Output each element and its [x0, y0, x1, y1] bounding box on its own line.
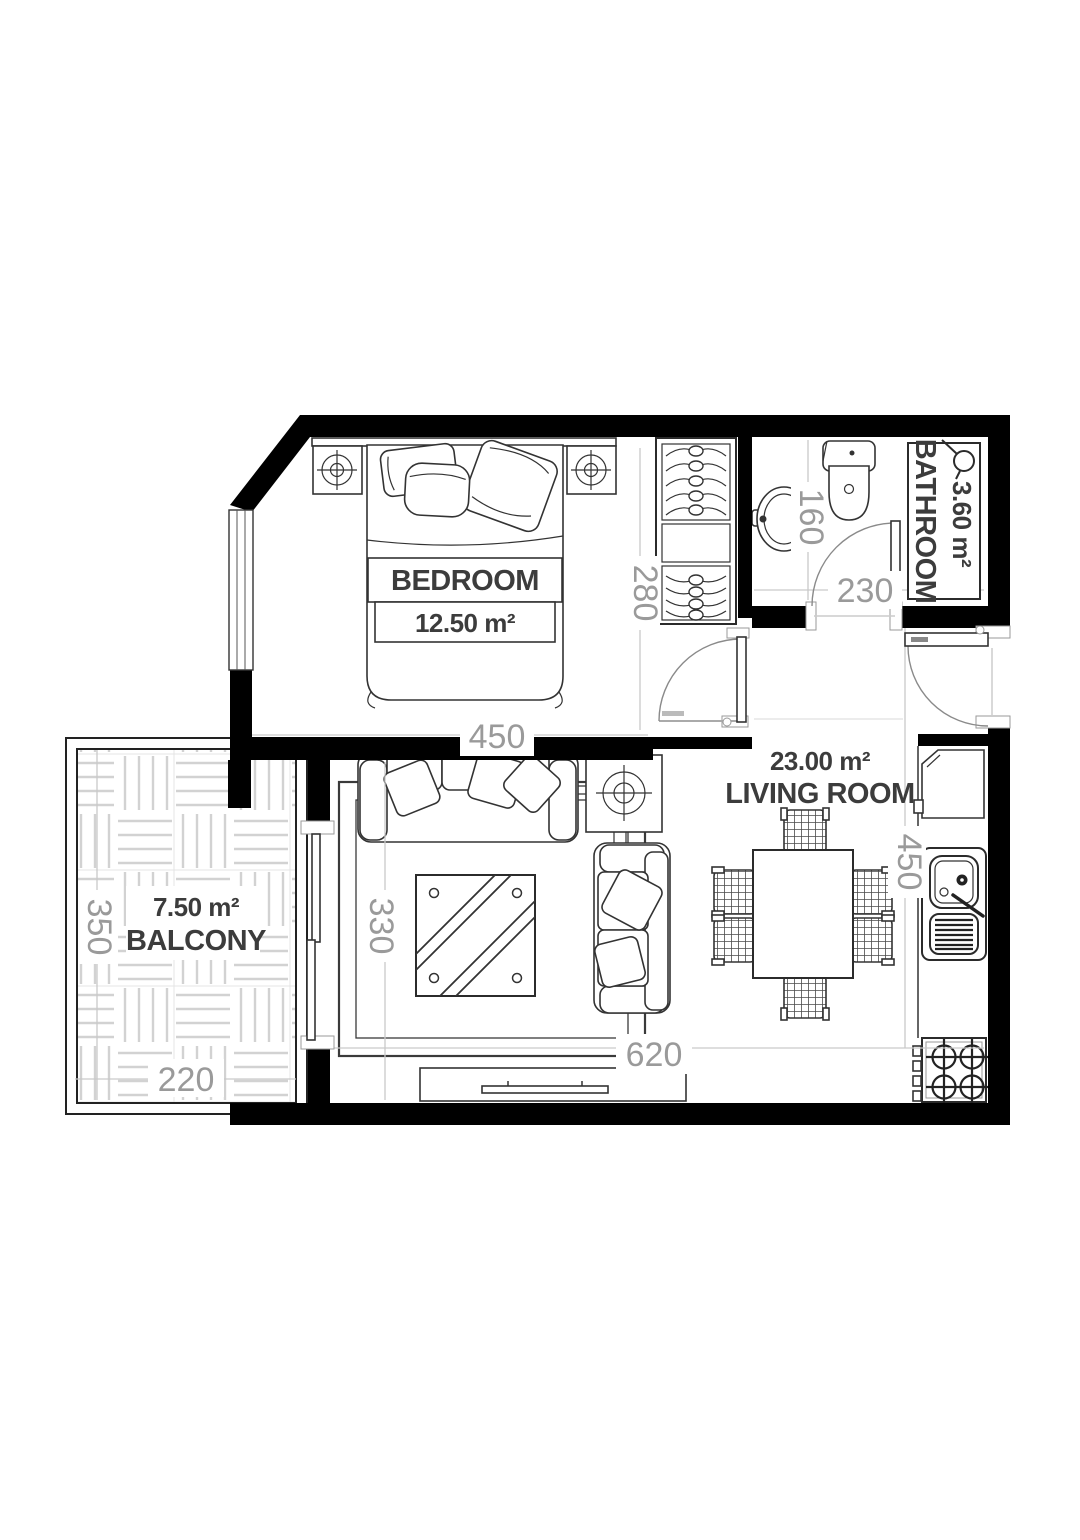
dining-set [712, 808, 894, 1020]
sofa [358, 750, 578, 842]
floor-plan-drawing: BEDROOM 12.50 m² [0, 0, 1080, 1540]
wall-bedroom-bottom [230, 737, 653, 760]
room-bedroom: BEDROOM 12.50 m² [312, 438, 736, 708]
pillow [404, 462, 471, 517]
dim-bathroom-width: 230 [837, 572, 894, 610]
wall-bathroom-bottom-left [752, 606, 812, 628]
nightstand-right [567, 446, 616, 494]
entrance-door [905, 626, 1010, 728]
dim-balcony-width: 220 [158, 1061, 215, 1099]
dim-bedroom-depth: 280 [626, 565, 664, 622]
side-table [578, 755, 662, 844]
bedroom-label: BEDROOM [391, 565, 539, 597]
wall-bedroom-bathroom [738, 437, 752, 618]
living-area-label: 23.00 m² [770, 746, 871, 776]
bathroom-label: BATHROOM [909, 439, 941, 604]
dining-table [753, 850, 853, 978]
kitchen-sink-icon [922, 848, 986, 960]
wall-bathroom-bottom-right [897, 606, 988, 628]
dining-chair [850, 867, 894, 917]
living-label: LIVING ROOM [725, 778, 914, 810]
fridge-icon [914, 750, 984, 818]
wall-right-lower [988, 722, 1010, 1103]
floor-plan-page: BEDROOM 12.50 m² [0, 0, 1080, 1540]
armchair-sofa [593, 843, 670, 1013]
double-bed: BEDROOM 12.50 m² [367, 438, 563, 708]
dining-chair [781, 974, 829, 1020]
bedroom-area-label: 12.50 m² [415, 608, 516, 638]
balcony-area-label: 7.50 m² [153, 892, 240, 922]
bathroom-label-box: 3.60 m² BATHROOM [908, 439, 980, 604]
pillow [593, 935, 646, 988]
dining-chair [712, 867, 756, 917]
dim-balcony-depth: 350 [80, 899, 118, 956]
dim-living-width: 620 [626, 1036, 683, 1074]
sliding-panel [312, 834, 320, 942]
dim-living-depth: 450 [890, 834, 928, 891]
dining-chair [712, 915, 756, 965]
balcony-label: BALCONY [126, 925, 266, 957]
dining-chair [850, 915, 894, 965]
dining-chair [781, 808, 829, 854]
dim-bedroom-width: 450 [469, 718, 526, 756]
sliding-panel [307, 940, 315, 1040]
wall-kitchen-stub [918, 734, 1010, 746]
bedroom-window [229, 510, 253, 670]
wall-balcony-stub [228, 760, 251, 808]
wall-left-lower [230, 668, 252, 737]
wall-bottom [230, 1103, 1010, 1125]
bedroom-door [659, 628, 749, 727]
wall-living-left-upper [308, 760, 330, 830]
nightstand-left [313, 446, 362, 494]
wall-right-upper [988, 437, 1010, 637]
dim-living-inner-width: 330 [362, 898, 400, 955]
bathroom-area-label: 3.60 m² [947, 481, 977, 568]
bedroom-door-leaf [737, 637, 746, 722]
wall-door-sill [653, 737, 752, 749]
kitchen [913, 746, 990, 1105]
dim-bathroom-depth: 160 [792, 489, 830, 546]
wardrobe [656, 438, 736, 624]
coffee-table [400, 858, 552, 1012]
